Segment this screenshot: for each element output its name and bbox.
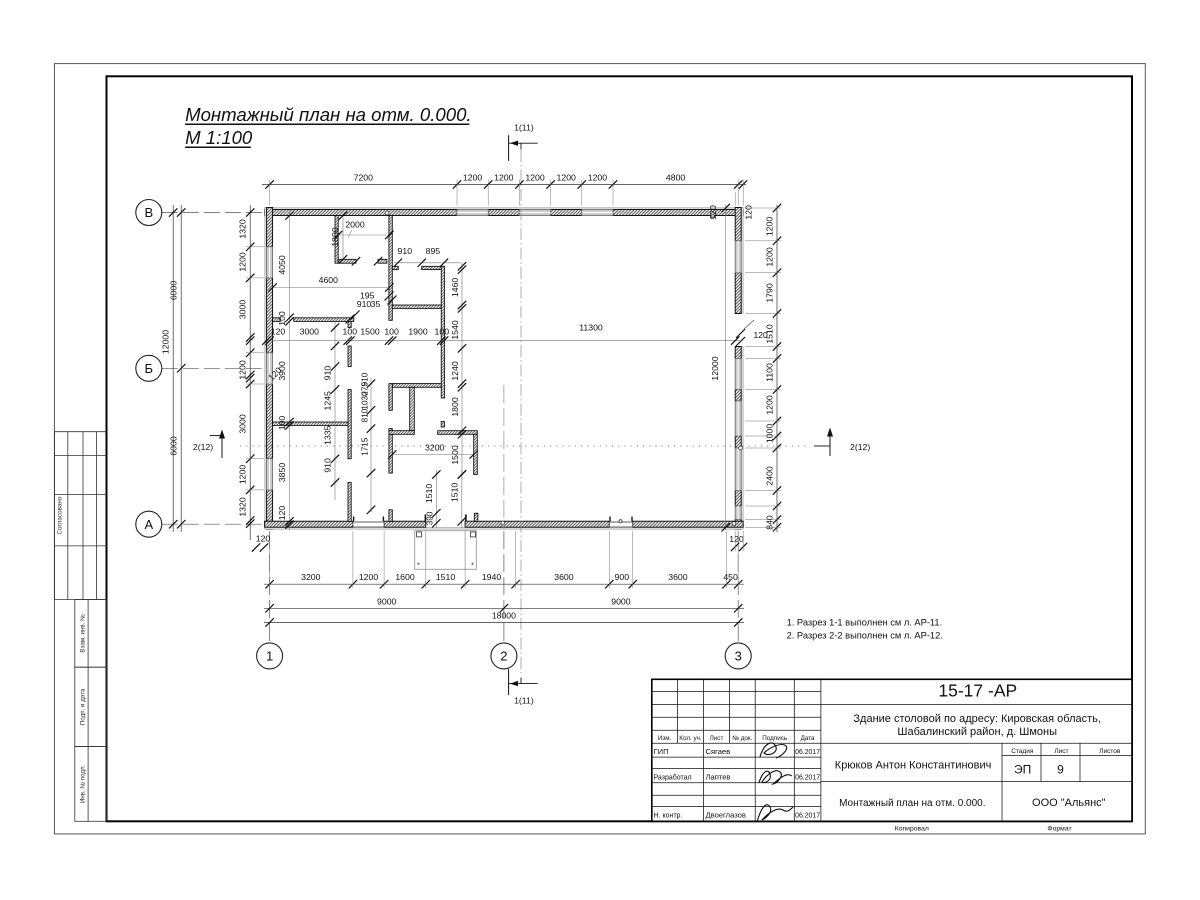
svg-text:18000: 18000 <box>492 611 516 621</box>
svg-text:1715: 1715 <box>361 437 370 456</box>
svg-text:1200: 1200 <box>494 173 513 183</box>
svg-text:1100: 1100 <box>764 363 774 382</box>
svg-text:6000: 6000 <box>169 281 179 300</box>
svg-text:895: 895 <box>426 246 441 256</box>
svg-text:1200: 1200 <box>463 173 482 183</box>
svg-text:3000: 3000 <box>238 300 248 319</box>
svg-text:900: 900 <box>615 572 630 582</box>
svg-text:1200: 1200 <box>588 173 607 183</box>
svg-text:11300: 11300 <box>579 323 603 333</box>
svg-text:1200: 1200 <box>238 465 248 484</box>
svg-text:1335: 1335 <box>323 425 333 444</box>
svg-text:1500: 1500 <box>450 445 460 464</box>
svg-text:1200: 1200 <box>764 247 774 266</box>
svg-text:1030: 1030 <box>361 391 370 410</box>
svg-text:1600: 1600 <box>395 572 414 582</box>
svg-text:Лаптев: Лаптев <box>706 773 731 782</box>
svg-text:9: 9 <box>1057 763 1064 777</box>
svg-text:12000: 12000 <box>710 356 720 380</box>
svg-text:Здание столовой по адресу: Кир: Здание столовой по адресу: Кировская обл… <box>853 713 1101 725</box>
svg-text:1. Разрез 1-1 выполнен см л. А: 1. Разрез 1-1 выполнен см л. АР-11. <box>787 617 943 627</box>
svg-text:Изм.: Изм. <box>658 735 672 742</box>
svg-text:№ док.: № док. <box>732 735 752 742</box>
svg-text:1540: 1540 <box>450 320 460 339</box>
svg-text:Сягаев: Сягаев <box>706 747 731 756</box>
svg-text:Н. контр.: Н. контр. <box>654 813 683 820</box>
svg-text:35: 35 <box>371 299 381 309</box>
svg-text:1510: 1510 <box>424 484 434 503</box>
svg-text:Лист: Лист <box>710 735 724 742</box>
svg-text:1245: 1245 <box>323 391 333 410</box>
svg-text:Согласовано: Согласовано <box>56 496 63 534</box>
svg-text:ГИП: ГИП <box>654 747 669 756</box>
svg-text:А: А <box>144 517 153 532</box>
svg-text:100: 100 <box>277 311 287 326</box>
svg-text:390: 390 <box>425 511 434 525</box>
svg-text:1510: 1510 <box>764 324 774 343</box>
svg-text:3600: 3600 <box>668 572 687 582</box>
svg-text:910: 910 <box>398 246 413 256</box>
svg-text:9000: 9000 <box>377 596 396 606</box>
svg-text:Формат: Формат <box>1047 825 1071 832</box>
svg-text:3850: 3850 <box>277 463 287 482</box>
svg-text:1(11): 1(11) <box>514 123 534 133</box>
svg-text:6000: 6000 <box>169 436 179 455</box>
svg-text:1500: 1500 <box>360 327 379 337</box>
svg-text:1900: 1900 <box>408 327 427 337</box>
svg-text:100: 100 <box>343 327 358 337</box>
svg-text:Двоеглазов: Двоеглазов <box>706 811 746 820</box>
svg-text:06.2017: 06.2017 <box>795 749 820 756</box>
svg-text:840: 840 <box>764 515 774 530</box>
svg-text:1510: 1510 <box>436 572 455 582</box>
svg-text:1200: 1200 <box>764 395 774 414</box>
svg-text:1800: 1800 <box>330 227 340 246</box>
svg-text:Крюков Антон Константинович: Крюков Антон Константинович <box>835 759 992 771</box>
svg-text:Дата: Дата <box>801 735 815 742</box>
svg-text:120: 120 <box>744 205 754 220</box>
svg-text:120: 120 <box>729 534 744 544</box>
svg-text:910: 910 <box>323 458 333 473</box>
svg-text:1940: 1940 <box>482 572 501 582</box>
svg-text:1800: 1800 <box>450 397 460 416</box>
svg-text:12000: 12000 <box>161 330 171 354</box>
svg-text:910: 910 <box>357 299 372 309</box>
svg-text:1: 1 <box>266 649 273 664</box>
svg-text:1200: 1200 <box>764 217 774 236</box>
svg-text:1(11): 1(11) <box>514 696 534 706</box>
svg-text:1320: 1320 <box>238 219 248 238</box>
svg-text:4600: 4600 <box>319 275 338 285</box>
svg-text:Б: Б <box>145 361 154 376</box>
svg-text:15-17 -АР: 15-17 -АР <box>938 681 1017 701</box>
svg-text:1460: 1460 <box>450 278 460 297</box>
svg-text:06.2017: 06.2017 <box>795 813 820 820</box>
svg-text:2(12): 2(12) <box>193 442 213 452</box>
svg-text:Лист: Лист <box>1054 748 1068 755</box>
svg-text:ООО "Альянс": ООО "Альянс" <box>1032 797 1106 809</box>
svg-text:2: 2 <box>500 649 507 664</box>
svg-text:2(12): 2(12) <box>850 442 870 452</box>
svg-text:7200: 7200 <box>354 173 373 183</box>
svg-text:450: 450 <box>723 572 738 582</box>
svg-text:1200: 1200 <box>359 572 378 582</box>
svg-text:3: 3 <box>735 649 742 664</box>
svg-text:Взам. инв. №: Взам. инв. № <box>79 614 86 653</box>
svg-text:Подпись: Подпись <box>762 735 788 742</box>
svg-text:100: 100 <box>435 327 450 337</box>
svg-text:Шабалинский район, д. Шмоны: Шабалинский район, д. Шмоны <box>897 726 1057 738</box>
svg-text:120: 120 <box>256 533 271 543</box>
svg-text:1790: 1790 <box>764 283 774 302</box>
svg-text:1200: 1200 <box>238 252 248 271</box>
svg-text:1200: 1200 <box>557 173 576 183</box>
svg-text:1200: 1200 <box>238 360 248 379</box>
svg-text:1000: 1000 <box>764 424 774 443</box>
svg-text:1320: 1320 <box>238 497 248 516</box>
svg-text:Листов: Листов <box>1099 748 1121 755</box>
svg-text:Копировал: Копировал <box>895 825 929 832</box>
svg-text:120: 120 <box>277 506 287 521</box>
svg-text:4800: 4800 <box>666 173 685 183</box>
svg-text:1240: 1240 <box>450 361 460 380</box>
svg-text:9000: 9000 <box>611 596 630 606</box>
svg-text:ЭП: ЭП <box>1014 763 1031 777</box>
svg-text:3600: 3600 <box>554 572 573 582</box>
svg-text:3000: 3000 <box>300 327 319 337</box>
svg-text:06.2017: 06.2017 <box>795 775 820 782</box>
svg-text:Инв. № подл.: Инв. № подл. <box>79 764 86 803</box>
svg-text:120: 120 <box>708 205 718 220</box>
svg-text:1510: 1510 <box>449 483 459 502</box>
svg-text:В: В <box>144 205 153 220</box>
svg-text:Разработал: Разработал <box>654 774 692 782</box>
svg-text:910: 910 <box>323 366 333 381</box>
svg-text:2. Разрез 2-2 выполнен см л. А: 2. Разрез 2-2 выполнен см л. АР-12. <box>787 630 943 640</box>
svg-text:Монтажный план на отм. 0.000.: Монтажный план на отм. 0.000. <box>185 104 472 125</box>
svg-text:120: 120 <box>271 327 286 337</box>
svg-text:4050: 4050 <box>277 255 287 274</box>
svg-text:М 1:100: М 1:100 <box>185 127 253 148</box>
svg-text:810: 810 <box>361 408 370 422</box>
svg-text:Монтажный план на отм. 0.000.: Монтажный план на отм. 0.000. <box>839 798 985 809</box>
svg-text:1200: 1200 <box>525 173 544 183</box>
svg-text:3200: 3200 <box>425 443 444 453</box>
svg-text:Кол. уч.: Кол. уч. <box>679 735 702 742</box>
svg-text:3900: 3900 <box>277 361 287 380</box>
svg-text:Подп. и дата: Подп. и дата <box>79 688 86 725</box>
svg-text:2400: 2400 <box>764 466 774 485</box>
svg-text:100: 100 <box>384 327 399 337</box>
svg-text:100: 100 <box>277 416 287 431</box>
svg-text:2000: 2000 <box>345 220 364 230</box>
svg-text:Стадия: Стадия <box>1011 748 1034 755</box>
svg-text:3000: 3000 <box>238 414 248 433</box>
svg-text:3200: 3200 <box>301 572 320 582</box>
